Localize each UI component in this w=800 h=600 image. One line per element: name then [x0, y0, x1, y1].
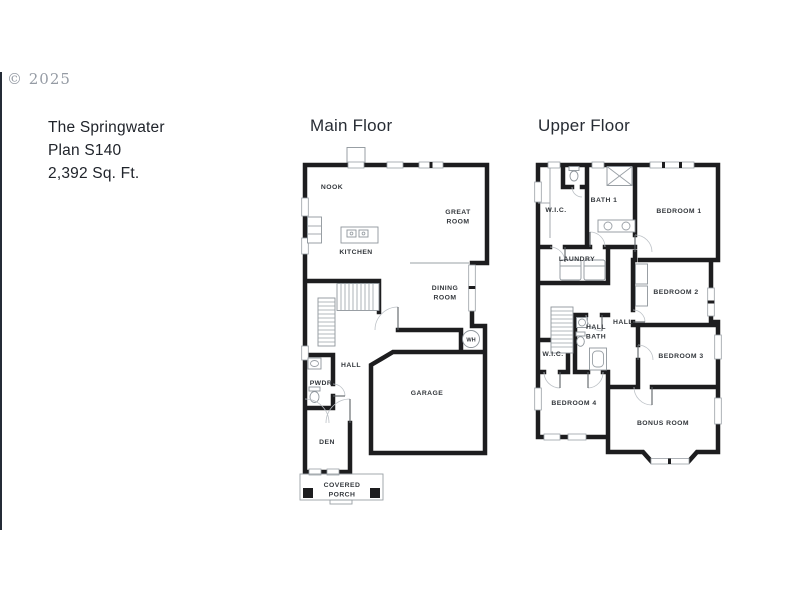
plan-number: Plan S140 [48, 139, 165, 162]
water-heater: WH [463, 331, 480, 348]
main-stairs [318, 284, 379, 347]
upper-floor-title: Upper Floor [538, 116, 630, 136]
svg-text:PORCH: PORCH [329, 492, 356, 499]
plan-name: The Springwater [48, 116, 165, 139]
room-label-bedroom4: BEDROOM 4 [551, 400, 596, 407]
floor-plan-sheet: © 2025 The Springwater Plan S140 2,392 S… [0, 0, 800, 600]
room-label-laundry: LAUNDRY [559, 256, 595, 263]
plan-area: 2,392 Sq. Ft. [48, 162, 165, 185]
room-label-bedroom2: BEDROOM 2 [653, 289, 698, 296]
room-label-bath1: BATH 1 [591, 197, 618, 204]
room-label-covered-porch: COVERED [324, 482, 361, 489]
svg-text:ROOM: ROOM [447, 219, 470, 226]
room-label-nook: NOOK [321, 184, 343, 191]
main-floor-plan: WH NOOK KITCHEN GREAT ROOM DINING ROOM H… [295, 140, 495, 510]
room-label-hall-bath: HALL [586, 324, 606, 331]
laundry-appliances [560, 260, 605, 280]
main-floor-title: Main Floor [310, 116, 392, 136]
kitchen-counter [308, 217, 322, 243]
copyright-watermark: © 2025 [7, 70, 71, 88]
room-label-pwdr: PWDR [310, 380, 333, 387]
svg-text:BATH: BATH [586, 334, 606, 341]
room-label-hall: HALL [613, 319, 633, 326]
room-label-dining-room: DINING [432, 285, 459, 292]
room-label-wic2: W.I.C. [542, 351, 563, 358]
covered-porch [300, 474, 383, 504]
upper-stairs [551, 307, 573, 353]
room-label-hall: HALL [341, 362, 361, 369]
room-label-wic1: W.I.C. [545, 207, 566, 214]
room-label-bedroom1: BEDROOM 1 [656, 208, 701, 215]
room-label-kitchen: KITCHEN [339, 249, 372, 256]
room-label-wh: WH [466, 338, 475, 344]
svg-text:ROOM: ROOM [434, 295, 457, 302]
room-label-great-room: GREAT [445, 209, 471, 216]
room-label-den: DEN [319, 439, 335, 446]
photo-edge-line [0, 72, 2, 530]
room-label-bonus-room: BONUS ROOM [637, 420, 689, 427]
upper-floor-plan: W.I.C. BATH 1 BEDROOM 1 LAUNDRY BEDROOM … [530, 150, 730, 480]
room-label-garage: GARAGE [411, 390, 444, 397]
room-label-bedroom3: BEDROOM 3 [658, 353, 703, 360]
plan-info-block: The Springwater Plan S140 2,392 Sq. Ft. [48, 116, 165, 185]
